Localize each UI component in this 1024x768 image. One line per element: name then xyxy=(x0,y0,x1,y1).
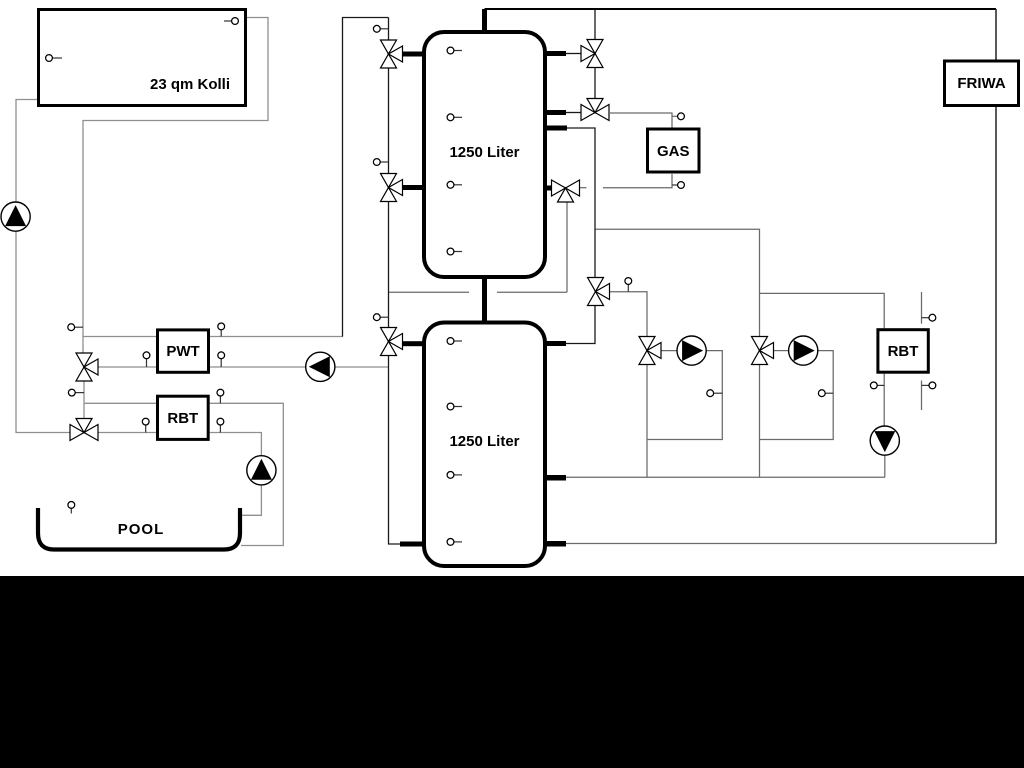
svg-text:FRIWA: FRIWA xyxy=(957,75,1005,92)
svg-text:RBT: RBT xyxy=(167,410,198,427)
svg-text:PWT: PWT xyxy=(166,343,199,360)
svg-text:GAS: GAS xyxy=(657,143,690,160)
svg-text:POOL: POOL xyxy=(118,521,165,538)
svg-text:RBT: RBT xyxy=(888,343,919,360)
svg-text:1250 Liter: 1250 Liter xyxy=(449,144,519,161)
svg-text:23 qm Kolli: 23 qm Kolli xyxy=(150,76,230,93)
svg-text:1250 Liter: 1250 Liter xyxy=(449,433,519,450)
